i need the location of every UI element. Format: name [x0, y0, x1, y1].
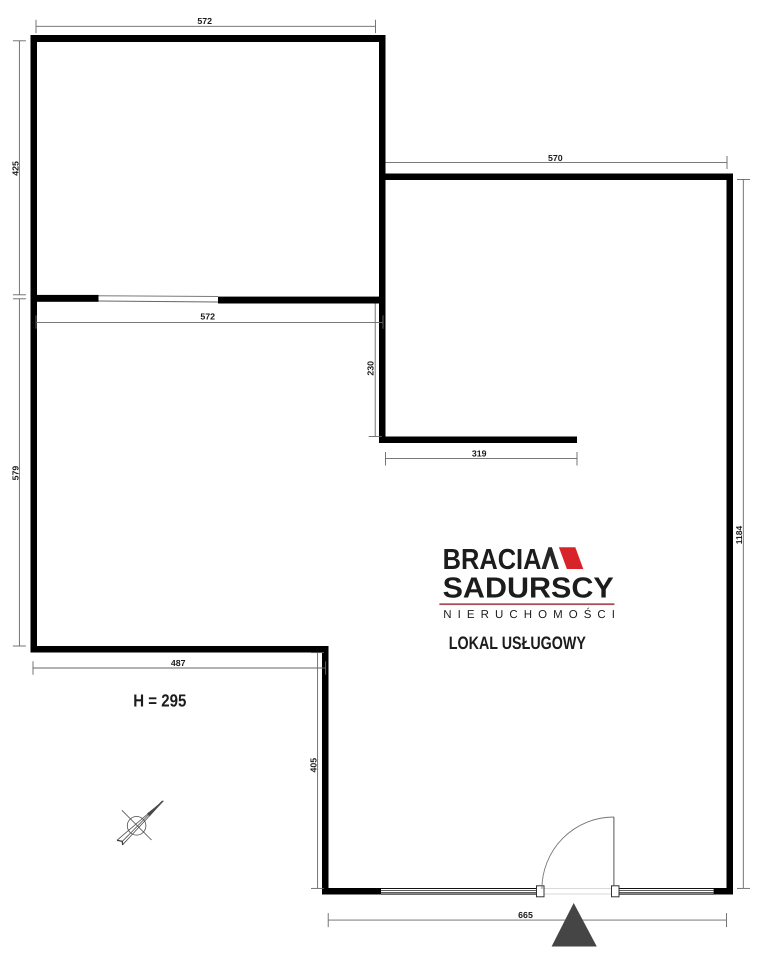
svg-text:BRACIA: BRACIA: [443, 544, 542, 576]
svg-text:487: 487: [171, 658, 186, 668]
svg-text:SADURSCY: SADURSCY: [443, 572, 614, 604]
svg-text:1184: 1184: [734, 526, 744, 545]
svg-text:572: 572: [197, 16, 212, 26]
svg-text:405: 405: [309, 758, 319, 773]
svg-text:572: 572: [200, 311, 215, 321]
svg-text:230: 230: [365, 361, 375, 376]
svg-text:H = 295: H = 295: [133, 690, 186, 710]
svg-text:LOKAL USŁUGOWY: LOKAL USŁUGOWY: [449, 633, 586, 653]
svg-text:425: 425: [10, 161, 20, 176]
svg-text:319: 319: [472, 448, 487, 458]
svg-text:570: 570: [548, 153, 563, 163]
svg-text:665: 665: [518, 910, 533, 920]
svg-text:NIERUCHOMOŚCI: NIERUCHOMOŚCI: [443, 607, 615, 621]
svg-text:579: 579: [10, 466, 20, 481]
